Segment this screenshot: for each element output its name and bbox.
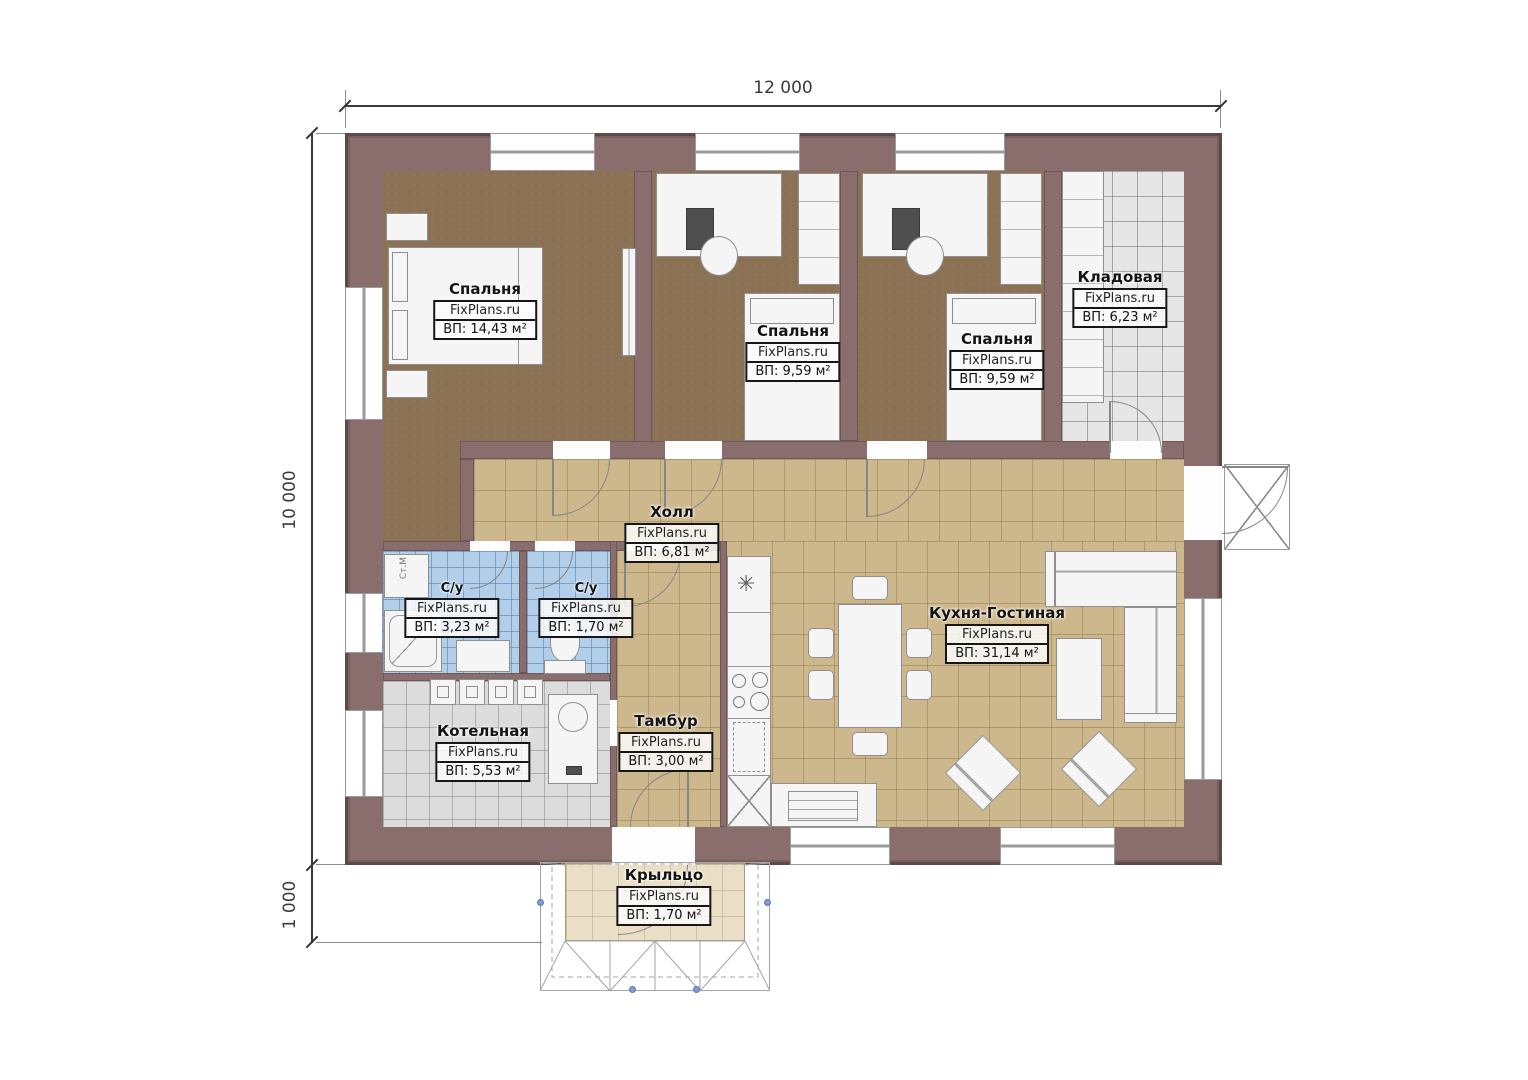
room-area: ВП: 5,53 м²: [437, 763, 528, 780]
office-chair: [700, 236, 738, 276]
window: [790, 827, 890, 865]
stove-burner: [733, 696, 745, 708]
wall: [720, 541, 727, 827]
door-leaf: [687, 769, 689, 827]
door-opening: [665, 441, 722, 459]
roof-marker-dot: [629, 986, 636, 993]
chair: [808, 670, 834, 700]
sofa-vertical: [1124, 607, 1177, 723]
room-name: Крыльцо: [616, 866, 711, 884]
room-name: Спальня: [949, 330, 1044, 348]
room-area: ВП: 3,00 м²: [620, 753, 711, 770]
window: [490, 133, 595, 171]
room-name: Спальня: [433, 280, 537, 298]
wardrobe: [798, 173, 840, 285]
room-name: Котельная: [435, 722, 530, 740]
stove-burner: [752, 672, 768, 688]
window: [345, 710, 383, 797]
watermark-text: FixPlans.ru: [435, 302, 535, 321]
boiler-vent: [566, 766, 582, 775]
room-name: Холл: [624, 503, 719, 521]
window: [695, 133, 800, 171]
watermark-text: FixPlans.ru: [540, 600, 631, 619]
door-leaf: [1109, 401, 1111, 453]
room-area: ВП: 14,43 м²: [435, 321, 535, 338]
room-name: С/у: [404, 581, 499, 596]
vanity-sink: [456, 640, 510, 672]
washing-machine-label: Ст.М: [399, 557, 409, 579]
dishwasher: [733, 722, 765, 772]
chair: [852, 576, 888, 600]
room-area: ВП: 3,23 м²: [406, 619, 497, 636]
dining-table: [838, 604, 902, 728]
extension-line: [345, 90, 346, 128]
extension-line: [1220, 90, 1221, 128]
dimension-width: 12 000: [733, 78, 833, 98]
watermark-text: FixPlans.ru: [620, 734, 711, 753]
watermark-text: FixPlans.ru: [437, 744, 528, 763]
room-label-bedroom3: Спальня FixPlans.ru ВП: 9,59 м²: [949, 330, 1044, 390]
wall: [1044, 171, 1062, 455]
room-label-porch: Крыльцо FixPlans.ru ВП: 1,70 м²: [616, 866, 711, 926]
watermark-text: FixPlans.ru: [406, 600, 497, 619]
room-area: ВП: 1,70 м²: [540, 619, 631, 636]
door-opening: [610, 700, 617, 746]
cabinet-knob: [466, 686, 478, 698]
window: [345, 593, 383, 653]
dimension-porch: 1 000: [280, 865, 300, 945]
cabinet-knob: [524, 686, 536, 698]
counter-divider: [727, 718, 771, 719]
pillow: [392, 310, 408, 360]
room-area: ВП: 31,14 м²: [947, 645, 1047, 662]
dimension-line-top: [345, 105, 1221, 107]
cabinet-knob: [495, 686, 507, 698]
door-opening: [867, 441, 927, 459]
room-label-kitchen-living: Кухня-Гостиная FixPlans.ru ВП: 31,14 м²: [929, 604, 1065, 664]
counter-divider: [727, 612, 771, 613]
room-label-bedroom1: Спальня FixPlans.ru ВП: 14,43 м²: [433, 280, 537, 340]
extension-line: [316, 864, 345, 865]
chair: [852, 732, 888, 756]
room-label-storage: Кладовая FixPlans.ru ВП: 6,23 м²: [1072, 268, 1167, 328]
door-leaf: [866, 459, 868, 517]
room-area: ВП: 9,59 м²: [951, 371, 1042, 388]
wall: [840, 171, 858, 441]
chair: [808, 628, 834, 658]
room-label-bedroom2: Спальня FixPlans.ru ВП: 9,59 м²: [745, 322, 840, 382]
extension-line: [316, 133, 345, 134]
pillow: [392, 252, 408, 302]
sofa-horizontal: [1055, 551, 1177, 607]
sofa-armrest: [1045, 551, 1055, 607]
room-label-vestibule: Тамбур FixPlans.ru ВП: 3,00 м²: [618, 712, 713, 772]
stove-burner: [732, 674, 746, 688]
watermark-text: FixPlans.ru: [626, 525, 717, 544]
watermark-text: FixPlans.ru: [747, 344, 838, 363]
dimension-line-porch: [311, 865, 313, 943]
room-area: ВП: 6,23 м²: [1074, 309, 1165, 326]
watermark-text: FixPlans.ru: [618, 888, 709, 907]
window: [1184, 598, 1222, 780]
wall: [519, 551, 527, 673]
watermark-text: FixPlans.ru: [947, 626, 1047, 645]
door-opening: [553, 441, 610, 459]
door-opening: [535, 541, 575, 551]
entry-door-opening: [612, 827, 695, 865]
cabinet-knob: [437, 686, 449, 698]
sofa-armrest: [1124, 713, 1177, 723]
pillow: [952, 298, 1036, 324]
room-name: Спальня: [745, 322, 840, 340]
boiler-drum: [558, 702, 588, 732]
nightstand: [386, 370, 428, 398]
fridge: [727, 775, 771, 827]
room-label-bathroom2: С/у FixPlans.ru ВП: 1,70 м²: [538, 581, 633, 638]
wall: [634, 171, 652, 459]
pillow: [750, 298, 834, 324]
side-door-opening: [1184, 466, 1222, 540]
roof-marker-dot: [693, 986, 700, 993]
oven: [788, 791, 858, 821]
stove-burner: [750, 692, 769, 711]
door-leaf: [1222, 466, 1288, 468]
roof-marker-dot: [764, 899, 771, 906]
room-name: Тамбур: [618, 712, 713, 730]
watermark-text: FixPlans.ru: [1074, 290, 1165, 309]
window: [895, 133, 1005, 171]
room-label-hall: Холл FixPlans.ru ВП: 6,81 м²: [624, 503, 719, 563]
sink-icon: ✳: [737, 572, 755, 597]
chair: [906, 670, 932, 700]
dimension-line-left: [311, 133, 313, 865]
door-opening: [470, 541, 510, 551]
roof-marker-dot: [537, 899, 544, 906]
room-name: С/у: [538, 581, 633, 596]
room-name: Кухня-Гостиная: [929, 604, 1065, 622]
room-label-boiler: Котельная FixPlans.ru ВП: 5,53 м²: [435, 722, 530, 782]
door-leaf: [552, 459, 554, 516]
nightstand: [386, 213, 428, 241]
room-name: Кладовая: [1072, 268, 1167, 286]
room-area: ВП: 1,70 м²: [618, 907, 709, 924]
wall: [460, 459, 474, 541]
dimension-height: 10 000: [280, 460, 300, 540]
watermark-text: FixPlans.ru: [951, 352, 1042, 371]
bedroom1-floor-ext: [383, 441, 460, 541]
window: [345, 287, 383, 420]
counter-divider: [727, 666, 771, 667]
window: [1000, 827, 1115, 865]
toilet-tank: [544, 660, 586, 674]
room-area: ВП: 6,81 м²: [626, 544, 717, 561]
wardrobe: [622, 248, 636, 356]
office-chair: [906, 236, 944, 276]
room-area: ВП: 9,59 м²: [747, 363, 838, 380]
floor-plan: 12 000 10 000 1 000: [0, 0, 1528, 1080]
extension-line: [316, 942, 542, 943]
wardrobe: [1000, 173, 1042, 285]
room-label-bathroom1: С/у FixPlans.ru ВП: 3,23 м²: [404, 581, 499, 638]
